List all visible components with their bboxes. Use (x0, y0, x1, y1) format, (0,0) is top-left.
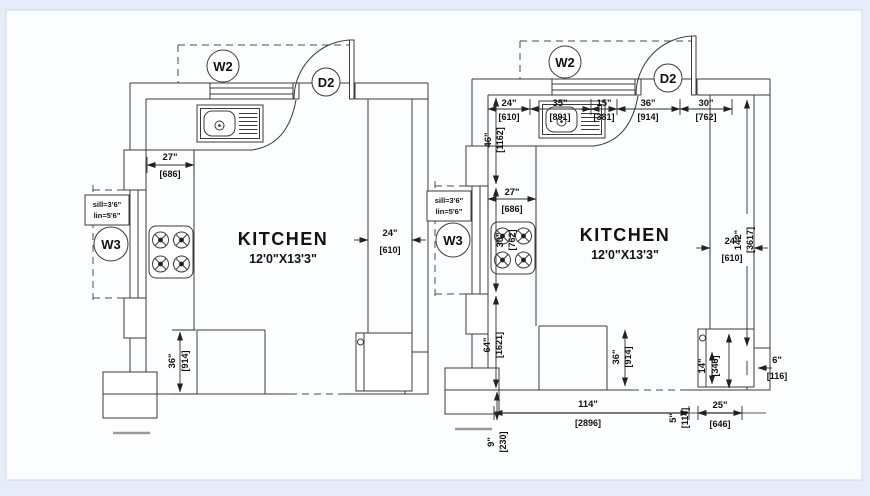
dim-inches: 142" (733, 230, 744, 250)
kitchen-floor-plan-drawing: W2 D2 W3 sill=3'6" lin=5'6" KITCHEN 12'0… (0, 0, 870, 496)
dim-mm: [762] (507, 229, 517, 250)
dim-mm: [891] (549, 112, 570, 122)
dim-mm: [686] (501, 204, 522, 214)
dim-mm: [646] (709, 419, 730, 429)
dim-mm: [762] (695, 112, 716, 122)
dim-inches: 24" (382, 228, 397, 239)
dim-inches: 30" (495, 232, 506, 247)
dim-inches: 25" (712, 400, 727, 411)
dim-mm: [116] (767, 371, 788, 381)
dim-inches: 5" (668, 413, 679, 423)
dim-inches: 36" (640, 98, 655, 109)
dim-mm: [3617] (745, 227, 755, 253)
dim-inches: 9" (486, 437, 497, 447)
dim-mm: [610] (498, 112, 519, 122)
dim-inches: 36" (167, 353, 178, 368)
dim-mm: [381] (593, 112, 614, 122)
dim-inches: 15" (596, 98, 611, 109)
dim-mm: [914] (623, 346, 633, 367)
dim-inches: 46" (483, 132, 494, 147)
dim-inches: 27" (162, 152, 177, 163)
dim-inches: 114" (578, 399, 598, 410)
dim-mm: [2896] (575, 418, 601, 428)
dim-inches: 14" (697, 358, 708, 373)
dim-mm: [610] (379, 245, 400, 255)
dim-mm: [914] (637, 112, 658, 122)
dim-inches: 36" (611, 349, 622, 364)
dim-inches: 24" (501, 98, 516, 109)
dim-mm: [1162] (495, 127, 505, 153)
dim-mm: [686] (159, 169, 180, 179)
dim-inches: 27" (504, 187, 519, 198)
dim-mm: [346] (710, 355, 720, 376)
dim-mm: [1621] (494, 332, 504, 358)
dim-mm: [914] (180, 350, 190, 371)
dim-inches: 64" (482, 337, 493, 352)
dim-mm: [610] (721, 253, 742, 263)
dim-inches: 6" (772, 355, 782, 366)
dim-inches: 30" (698, 98, 713, 109)
dim-inches: 35" (552, 98, 567, 109)
dim-mm: [114] (680, 408, 690, 429)
dim-mm: [230] (498, 431, 508, 452)
